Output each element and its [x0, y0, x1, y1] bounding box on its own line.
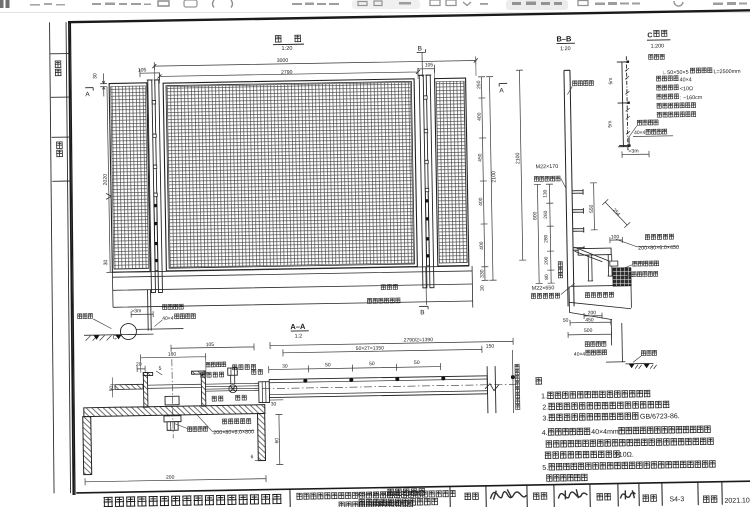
- svg-text:A: A: [499, 87, 504, 94]
- svg-text:40×4mm: 40×4mm: [591, 429, 619, 436]
- svg-text:1:20: 1:20: [560, 46, 571, 52]
- svg-text:2790: 2790: [281, 70, 293, 76]
- svg-text:2100: 2100: [515, 152, 521, 164]
- svg-text:40×4: 40×4: [680, 77, 692, 83]
- svg-text:400: 400: [479, 241, 485, 250]
- svg-text:<10Ω: <10Ω: [680, 86, 693, 92]
- svg-text:250: 250: [476, 80, 482, 89]
- svg-text:: ~160cm: : ~160cm: [680, 95, 703, 101]
- svg-text:450: 450: [585, 317, 594, 323]
- svg-text:30: 30: [480, 285, 486, 291]
- svg-text:1:2: 1:2: [295, 333, 303, 339]
- svg-text:280: 280: [543, 234, 549, 242]
- svg-text:330: 330: [479, 269, 485, 278]
- svg-text:40×4: 40×4: [574, 352, 586, 358]
- svg-text:1.: 1.: [541, 393, 547, 400]
- svg-text:2100: 2100: [491, 171, 497, 183]
- svg-text:>3m: >3m: [628, 148, 638, 154]
- svg-text:B–B: B–B: [556, 34, 572, 43]
- svg-text:M22×650: M22×650: [532, 285, 555, 291]
- svg-text:200: 200: [588, 310, 597, 316]
- svg-text:A–A: A–A: [290, 322, 306, 331]
- svg-text:400: 400: [477, 112, 483, 121]
- svg-text:260: 260: [543, 210, 549, 218]
- svg-text:200: 200: [544, 256, 550, 264]
- svg-text:L=2500mm: L=2500mm: [713, 69, 741, 75]
- svg-text:>3m: >3m: [131, 308, 141, 314]
- svg-text:3.: 3.: [542, 415, 548, 422]
- svg-text:A: A: [85, 91, 90, 98]
- svg-text:K0+415.00: K0+415.00: [357, 491, 389, 499]
- svg-text:550: 550: [589, 204, 595, 213]
- svg-text:2020: 2020: [103, 174, 109, 186]
- svg-text:50: 50: [325, 362, 331, 368]
- svg-text:B: B: [417, 45, 421, 52]
- svg-text:5m: 5m: [608, 78, 614, 85]
- svg-text:50: 50: [369, 361, 375, 367]
- svg-text:40×4: 40×4: [162, 316, 174, 322]
- svg-text:105: 105: [206, 342, 215, 348]
- svg-text:5: 5: [159, 366, 162, 372]
- svg-text:C: C: [647, 32, 652, 39]
- svg-text:C: C: [113, 335, 118, 341]
- svg-text:2.: 2.: [542, 404, 548, 411]
- svg-text:5m: 5m: [607, 121, 613, 128]
- svg-text:6: 6: [251, 454, 254, 460]
- svg-text:1:200: 1:200: [651, 43, 665, 49]
- svg-text:30: 30: [103, 259, 109, 265]
- svg-text:105: 105: [138, 67, 147, 73]
- svg-text:2790/2=1390: 2790/2=1390: [404, 337, 434, 344]
- svg-text:130: 130: [543, 189, 549, 197]
- svg-text:M22×170: M22×170: [536, 164, 559, 170]
- svg-text:400: 400: [478, 197, 484, 206]
- svg-text:100: 100: [611, 234, 620, 240]
- svg-text:2021.10: 2021.10: [724, 497, 750, 504]
- svg-text:∟50×50×5: ∟50×50×5: [662, 70, 689, 76]
- svg-text:5.: 5.: [542, 465, 548, 472]
- svg-text:30: 30: [92, 73, 98, 79]
- svg-text:200: 200: [166, 475, 175, 481]
- svg-text:50: 50: [109, 385, 115, 391]
- svg-text:150: 150: [486, 344, 495, 350]
- svg-text:500: 500: [584, 328, 593, 334]
- svg-text:3000: 3000: [277, 58, 289, 64]
- svg-text:40×4: 40×4: [634, 130, 646, 136]
- svg-text:800: 800: [532, 211, 538, 220]
- svg-text:160: 160: [168, 352, 177, 358]
- svg-text:30: 30: [282, 364, 288, 370]
- svg-text:105: 105: [425, 62, 434, 68]
- svg-text:80: 80: [544, 274, 550, 280]
- svg-text:GB/6723-86.: GB/6723-86.: [640, 413, 680, 421]
- svg-text:B: B: [420, 309, 424, 316]
- svg-text:450: 450: [477, 153, 483, 162]
- svg-text:S4-3: S4-3: [669, 496, 684, 503]
- svg-text:50: 50: [563, 318, 569, 324]
- svg-text:50: 50: [414, 360, 420, 366]
- svg-text:1:20: 1:20: [281, 46, 292, 52]
- svg-text:60: 60: [274, 438, 280, 444]
- svg-text:>10Ω.: >10Ω.: [615, 452, 634, 459]
- svg-text:30: 30: [271, 401, 277, 407]
- svg-text:4.: 4.: [542, 430, 548, 437]
- svg-text:50×27=1350: 50×27=1350: [356, 345, 384, 351]
